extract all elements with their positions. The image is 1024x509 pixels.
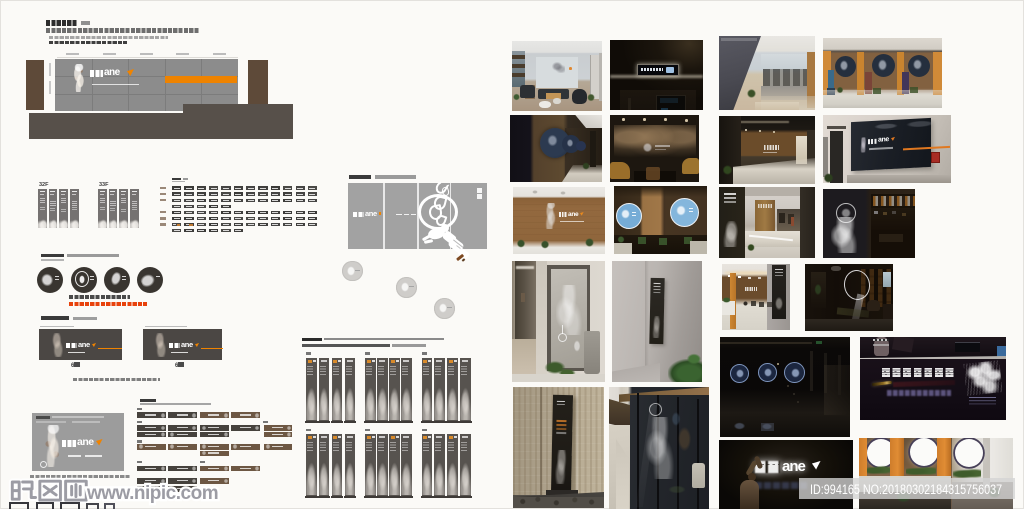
svg-text:www.nipic.com: www.nipic.com: [86, 483, 218, 504]
